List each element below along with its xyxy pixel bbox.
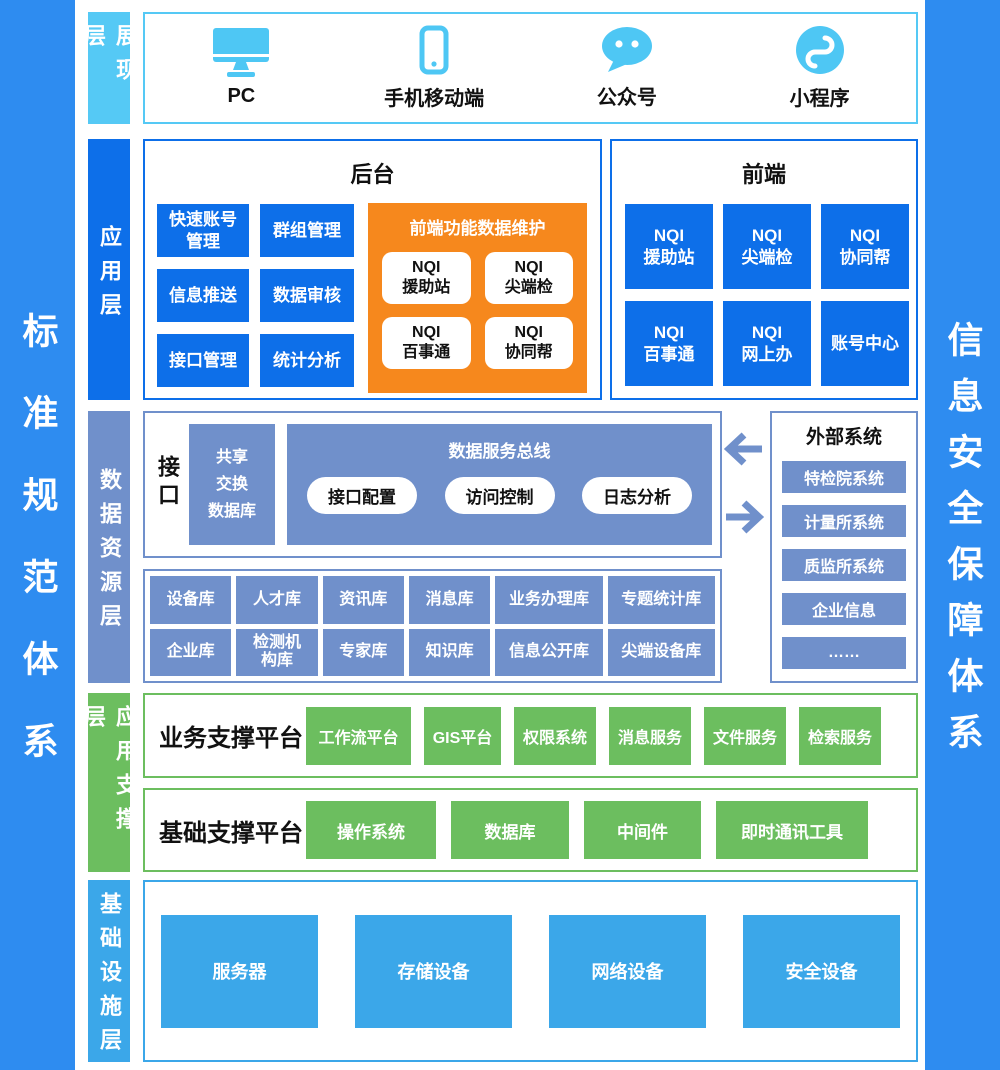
layer-label-data-resource: 数据资源层 — [88, 411, 130, 683]
backend-title: 后台 — [145, 157, 600, 189]
infrastructure-item: 存储设备 — [355, 915, 512, 1028]
infrastructure-item: 安全设备 — [743, 915, 900, 1028]
basic-support-item: 操作系统 — [306, 801, 436, 859]
device-pc-label: PC — [227, 85, 255, 108]
databases-grid: 设备库 人才库 资讯库 消息库 业务办理库 专题统计库 企业库 检测机 构库 专… — [150, 576, 715, 676]
miniprogram-icon — [795, 25, 845, 75]
infrastructure-panel: 服务器 存储设备 网络设备 安全设备 — [143, 880, 918, 1062]
arrow-left-icon — [724, 432, 764, 466]
device-mobile-label: 手机移动端 — [384, 82, 484, 111]
frontend-module: NQI 网上办 — [723, 301, 811, 386]
database-cell: 企业库 — [150, 629, 231, 677]
bus-pill: 访问控制 — [445, 477, 555, 514]
frontend-module: NQI 援助站 — [625, 204, 713, 289]
share-exchange-database: 共享 交换 数据库 — [189, 424, 275, 545]
external-system: 企业信息 — [782, 593, 906, 625]
infrastructure-item: 网络设备 — [549, 915, 706, 1028]
frontend-module: 账号中心 — [821, 301, 909, 386]
bus-pill: 接口配置 — [307, 477, 417, 514]
external-system: 质监所系统 — [782, 549, 906, 581]
data-interface-panel: 数据接口 共享 交换 数据库 数据服务总线 接口配置 访问控制 日志分析 — [143, 411, 722, 558]
basic-support-item: 数据库 — [451, 801, 569, 859]
frontend-modules-grid: NQI 援助站 NQI 尖端检 NQI 协同帮 NQI 百事通 NQI 网上办 … — [625, 204, 909, 386]
maintenance-item: NQI 援助站 — [382, 252, 471, 304]
layer-label-application: 应用层 — [88, 139, 130, 400]
database-cell: 检测机 构库 — [236, 629, 317, 677]
phone-icon — [419, 25, 449, 75]
device-miniprogram-label: 小程序 — [790, 82, 850, 111]
layer-label-infrastructure: 基础设施层 — [88, 880, 130, 1062]
external-system-more: …… — [782, 637, 906, 669]
device-official-account-label: 公众号 — [597, 81, 657, 110]
data-service-bus-panel: 数据服务总线 接口配置 访问控制 日志分析 — [287, 424, 712, 545]
basic-support-item: 即时通讯工具 — [716, 801, 868, 859]
arrow-right-icon — [724, 500, 764, 534]
business-support-item: GIS平台 — [424, 707, 501, 765]
backend-module: 快速账号 管理 — [157, 204, 249, 257]
backend-module: 信息推送 — [157, 269, 249, 322]
basic-support-title: 基础支撑平台 — [145, 813, 306, 848]
basic-support-items: 操作系统 数据库 中间件 即时通讯工具 — [306, 801, 868, 859]
right-security-bar-label: 信息安全保障体系 — [937, 301, 989, 769]
external-systems-panel: 外部系统 特检院系统 计量所系统 质监所系统 企业信息 …… — [770, 411, 918, 683]
backend-module: 统计分析 — [260, 334, 354, 387]
device-miniprogram: 小程序 — [723, 14, 916, 122]
device-pc: PC — [145, 14, 338, 122]
basic-support-item: 中间件 — [584, 801, 701, 859]
bus-pills-row: 接口配置 访问控制 日志分析 — [287, 477, 712, 514]
frontend-title: 前端 — [612, 157, 916, 189]
data-service-bus-title: 数据服务总线 — [287, 437, 712, 462]
database-cell: 业务办理库 — [495, 576, 602, 624]
business-support-panel: 业务支撑平台 工作流平台 GIS平台 权限系统 消息服务 文件服务 检索服务 — [143, 693, 918, 778]
frontend-module: NQI 尖端检 — [723, 204, 811, 289]
basic-support-panel: 基础支撑平台 操作系统 数据库 中间件 即时通讯工具 — [143, 788, 918, 872]
left-standards-bar-label: 标准规范体系 — [12, 266, 64, 804]
maintenance-items-grid: NQI 援助站 NQI 尖端检 NQI 百事通 NQI 协同帮 — [382, 252, 573, 369]
business-support-item: 工作流平台 — [306, 707, 411, 765]
databases-panel: 设备库 人才库 资讯库 消息库 业务办理库 专题统计库 企业库 检测机 构库 专… — [143, 569, 722, 683]
device-official-account: 公众号 — [531, 14, 724, 122]
maintenance-item: NQI 协同帮 — [485, 317, 574, 369]
business-support-item: 权限系统 — [514, 707, 596, 765]
business-support-item: 检索服务 — [799, 707, 881, 765]
backend-module: 数据审核 — [260, 269, 354, 322]
database-cell: 设备库 — [150, 576, 231, 624]
business-support-title: 业务支撑平台 — [145, 718, 306, 753]
database-cell: 专家库 — [323, 629, 404, 677]
frontend-panel: 前端 NQI 援助站 NQI 尖端检 NQI 协同帮 NQI 百事通 NQI 网… — [610, 139, 918, 400]
architecture-diagram: 标准规范体系 信息安全保障体系 展现层 应用层 数据资源层 应用支撑层 基础设施… — [0, 0, 1000, 1070]
maintenance-item: NQI 尖端检 — [485, 252, 574, 304]
external-system: 特检院系统 — [782, 461, 906, 493]
backend-panel: 后台 快速账号 管理 群组管理 信息推送 数据审核 接口管理 统计分析 前端功能… — [143, 139, 602, 400]
layer-label-app-support: 应用支撑层 — [88, 693, 130, 872]
database-cell: 信息公开库 — [495, 629, 602, 677]
infrastructure-item: 服务器 — [161, 915, 318, 1028]
business-support-item: 消息服务 — [609, 707, 691, 765]
external-systems-title: 外部系统 — [772, 422, 916, 449]
maintenance-item: NQI 百事通 — [382, 317, 471, 369]
presentation-layer-panel: PC 手机移动端 公众号 小程序 — [143, 12, 918, 124]
layer-label-presentation: 展现层 — [88, 12, 130, 124]
frontend-module: NQI 协同帮 — [821, 204, 909, 289]
backend-module: 群组管理 — [260, 204, 354, 257]
database-cell: 人才库 — [236, 576, 317, 624]
right-security-bar: 信息安全保障体系 — [925, 0, 1000, 1070]
business-support-items: 工作流平台 GIS平台 权限系统 消息服务 文件服务 检索服务 — [306, 707, 881, 765]
monitor-icon — [213, 28, 269, 78]
left-standards-bar: 标准规范体系 — [0, 0, 75, 1070]
device-mobile: 手机移动端 — [338, 14, 531, 122]
frontend-data-maintenance-panel: 前端功能数据维护 NQI 援助站 NQI 尖端检 NQI 百事通 NQI 协同帮 — [368, 203, 587, 393]
database-cell: 资讯库 — [323, 576, 404, 624]
database-cell: 知识库 — [409, 629, 490, 677]
backend-module: 接口管理 — [157, 334, 249, 387]
database-cell: 尖端设备库 — [608, 629, 715, 677]
frontend-data-maintenance-title: 前端功能数据维护 — [368, 214, 587, 239]
bus-pill: 日志分析 — [582, 477, 692, 514]
frontend-module: NQI 百事通 — [625, 301, 713, 386]
backend-modules-grid: 快速账号 管理 群组管理 信息推送 数据审核 接口管理 统计分析 — [157, 204, 354, 387]
external-system: 计量所系统 — [782, 505, 906, 537]
database-cell: 专题统计库 — [608, 576, 715, 624]
chat-bubble-icon — [600, 26, 654, 74]
business-support-item: 文件服务 — [704, 707, 786, 765]
database-cell: 消息库 — [409, 576, 490, 624]
